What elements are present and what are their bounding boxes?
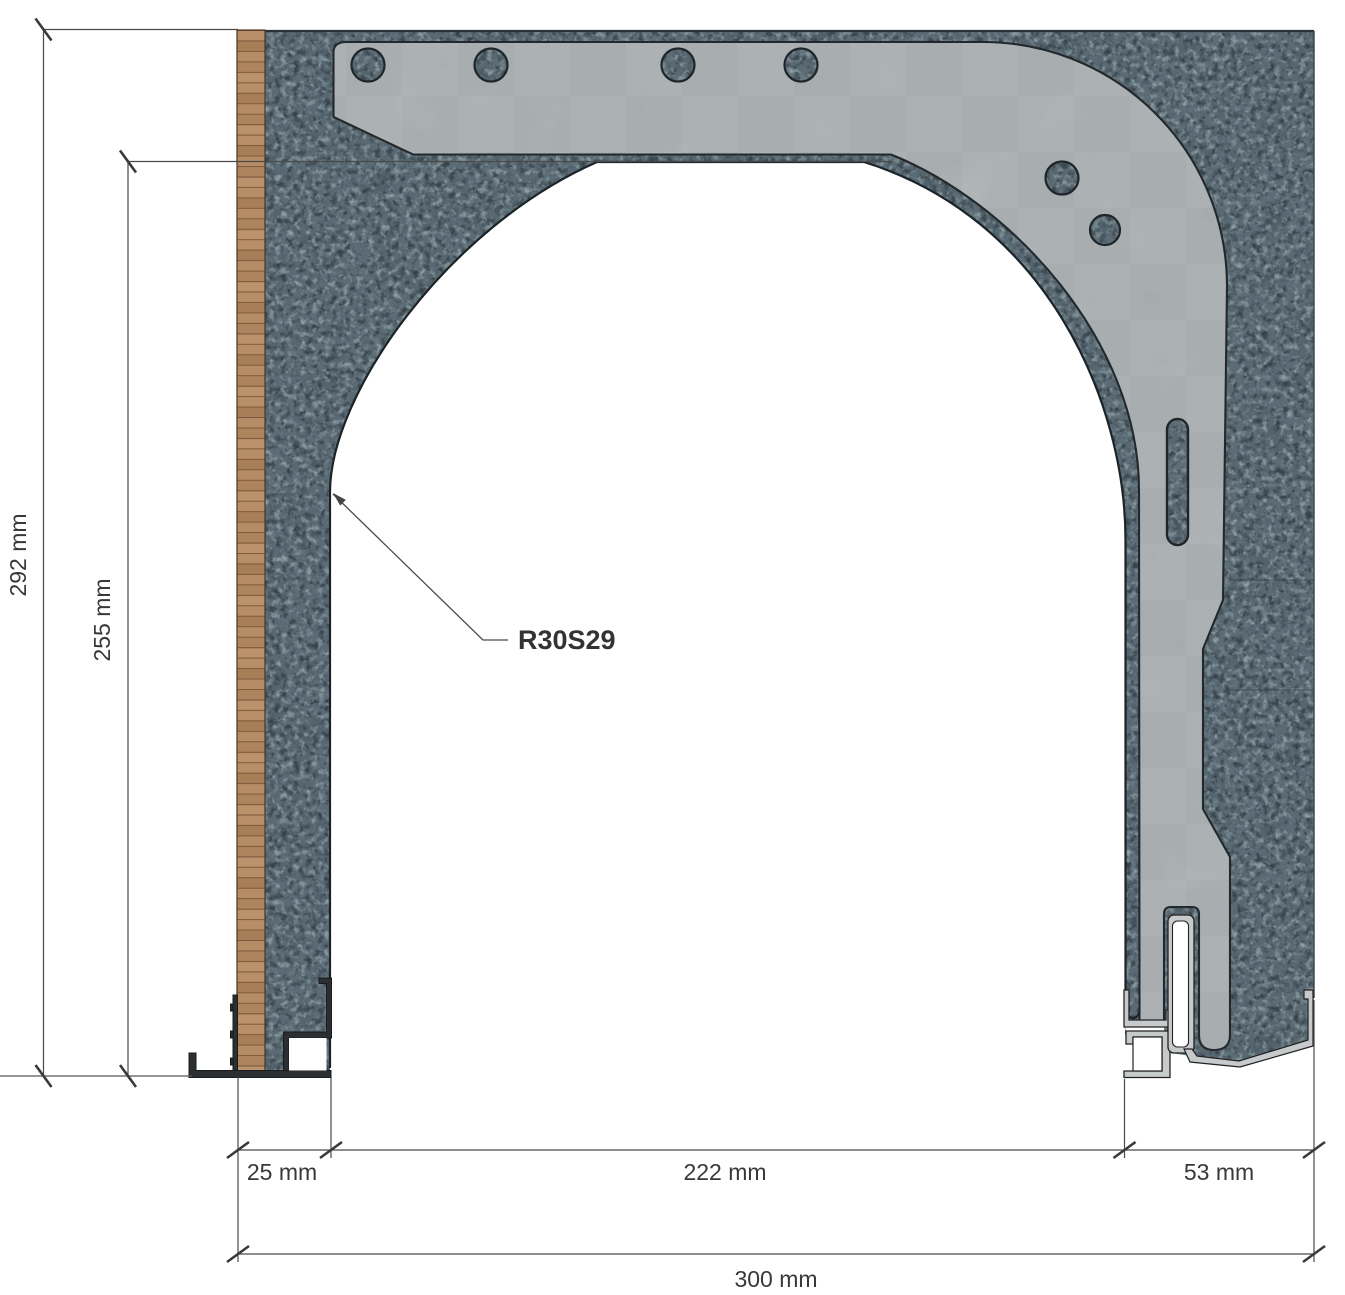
svg-text:222 mm: 222 mm [683, 1159, 766, 1185]
svg-text:25 mm: 25 mm [247, 1159, 317, 1185]
svg-text:R30S29: R30S29 [518, 625, 616, 655]
svg-text:292 mm: 292 mm [5, 513, 31, 596]
svg-text:255 mm: 255 mm [89, 578, 115, 661]
svg-text:53 mm: 53 mm [1184, 1159, 1254, 1185]
svg-text:300 mm: 300 mm [734, 1266, 817, 1292]
